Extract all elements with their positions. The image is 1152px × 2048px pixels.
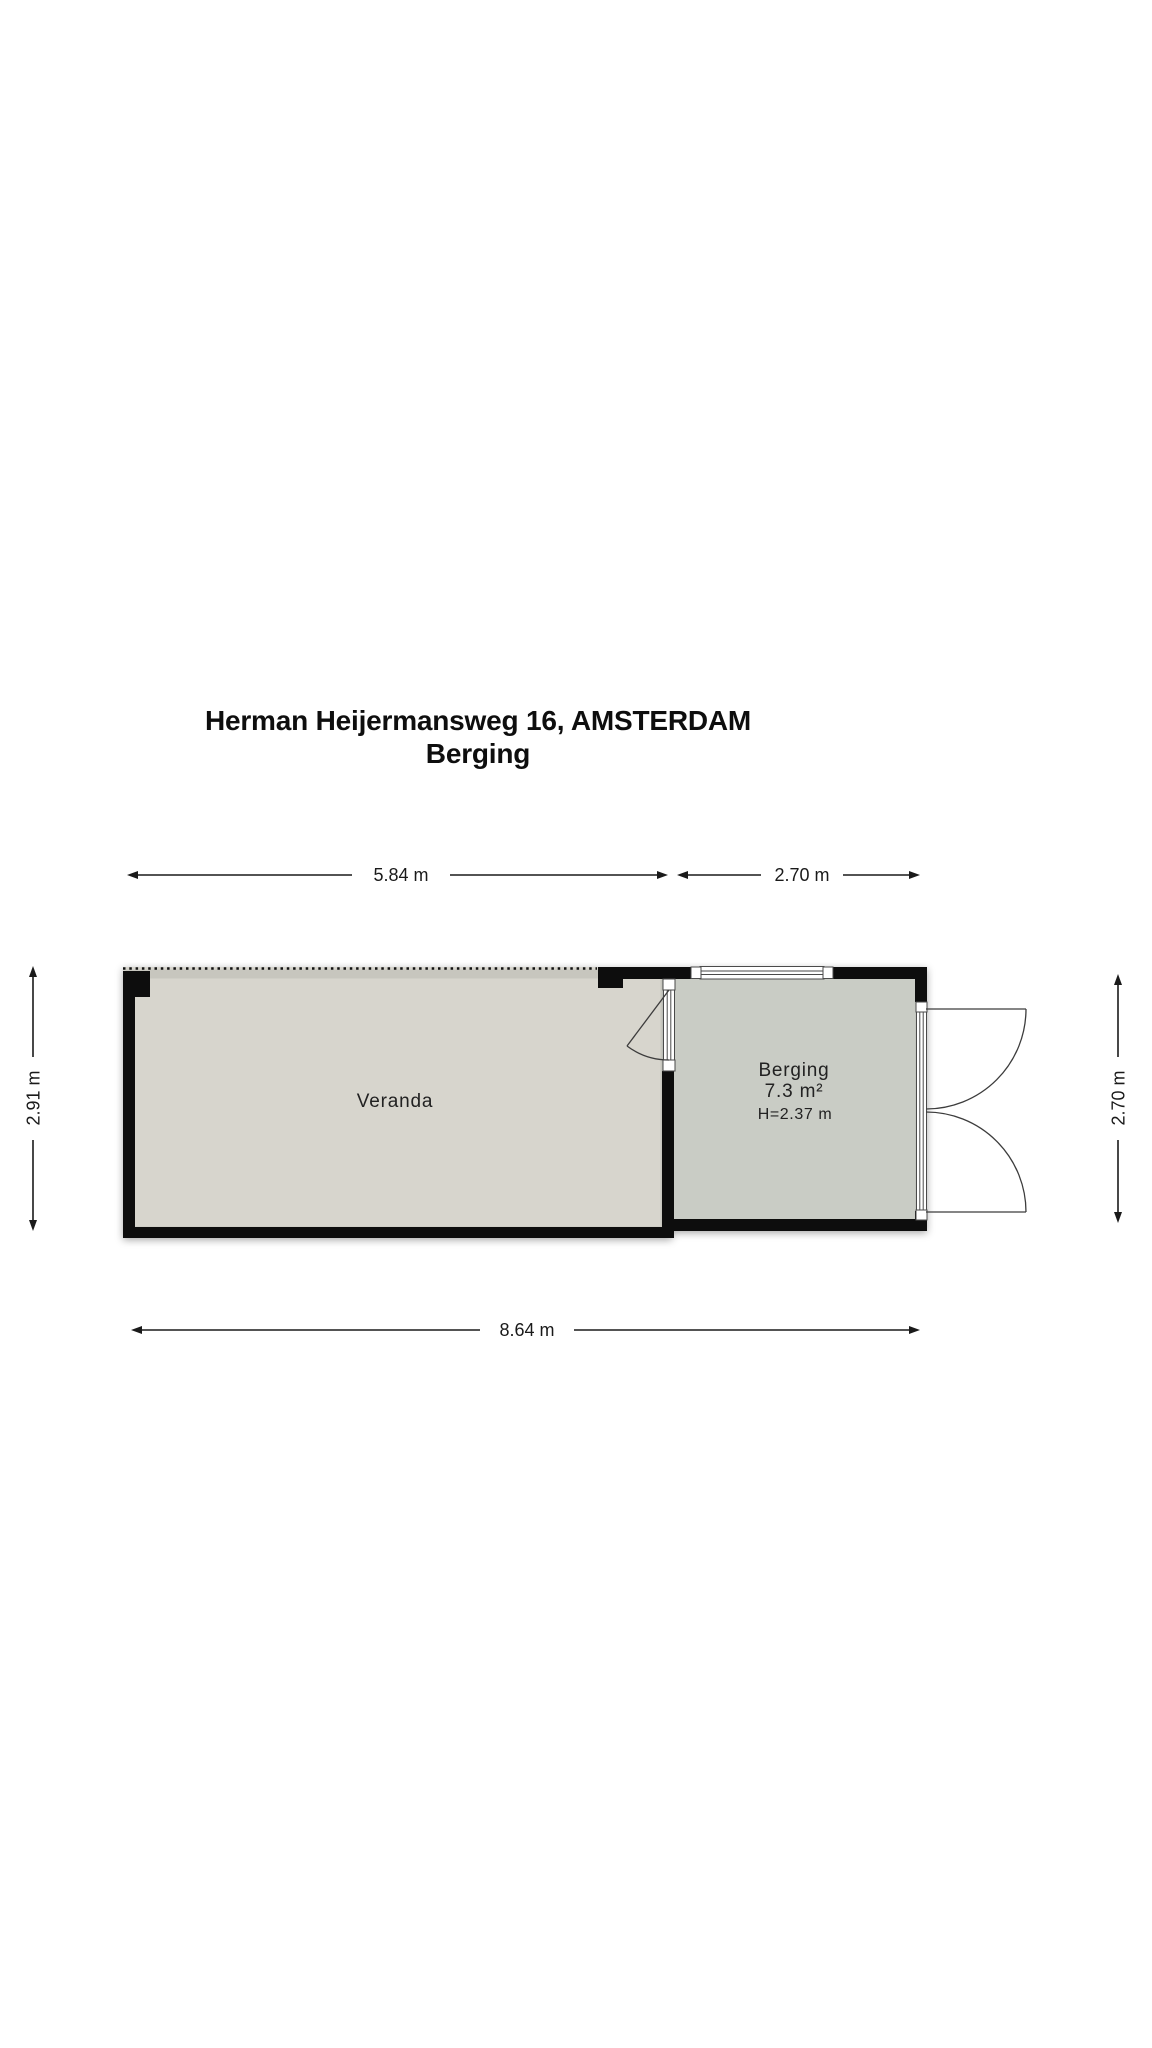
dim-left-veranda: 2.91 m [24, 966, 44, 1231]
dim-right-berging: 2.70 m [1109, 974, 1129, 1223]
window-glazing [700, 967, 824, 980]
dim-arrow-right [657, 871, 668, 879]
berging-label: Berging [758, 1060, 829, 1081]
dim-label-left-veranda: 2.91 m [24, 1070, 44, 1125]
window-jamb-right [823, 967, 833, 979]
veranda-label: Veranda [357, 1091, 433, 1112]
door-swing-arc-top [926, 1009, 1026, 1109]
door-jamb-bottom [663, 1060, 675, 1071]
veranda-top-right-wall [598, 967, 692, 979]
veranda-left-wall [123, 971, 135, 1238]
door-frame [664, 990, 675, 1060]
window-jamb-left [691, 967, 701, 979]
doors-frame [917, 1012, 927, 1210]
dim-top-berging: 2.70 m [677, 865, 920, 885]
dim-label-top-veranda: 5.84 m [373, 865, 428, 885]
berging-right-wall-top [915, 967, 927, 1002]
dim-bottom-total: 8.64 m [131, 1320, 920, 1340]
dividing-wall [662, 1071, 674, 1238]
doors-jamb-bottom [916, 1210, 927, 1220]
dim-label-bottom-total: 8.64 m [499, 1320, 554, 1340]
doors-jamb-top [916, 1002, 927, 1012]
building-footprint [123, 967, 927, 1238]
dim-arrow-left [131, 1326, 142, 1334]
dim-arrow-down [1114, 1212, 1122, 1223]
door-jamb-top [663, 979, 675, 990]
dim-arrow-down [29, 1220, 37, 1231]
dim-label-right-berging: 2.70 m [1109, 1070, 1129, 1125]
dim-arrow-right [909, 1326, 920, 1334]
dim-arrow-up [29, 966, 37, 977]
floorplan-drawing: Veranda Berging 7.3 m² H=2.37 m 5.84 m 2… [0, 0, 1152, 2048]
dim-top-veranda: 5.84 m [127, 865, 668, 885]
dim-label-top-berging: 2.70 m [774, 865, 829, 885]
veranda-top-right-post [598, 979, 623, 988]
berging-double-doors [916, 1002, 1026, 1220]
berging-area-label: 7.3 m² [765, 1081, 824, 1102]
dim-arrow-left [677, 871, 688, 879]
berging-top-right-wall [832, 967, 927, 979]
dim-arrow-right [909, 871, 920, 879]
door-swing-arc-bottom [926, 1112, 1026, 1212]
berging-bottom-wall [662, 1219, 927, 1231]
dim-arrow-up [1114, 974, 1122, 985]
berging-ceiling-height-label: H=2.37 m [758, 1106, 833, 1123]
berging-window [691, 967, 833, 980]
floorplan-page: Herman Heijermansweg 16, AMSTERDAM Bergi… [0, 0, 1152, 2048]
veranda-bottom-wall [123, 1227, 672, 1238]
dim-arrow-left [127, 871, 138, 879]
